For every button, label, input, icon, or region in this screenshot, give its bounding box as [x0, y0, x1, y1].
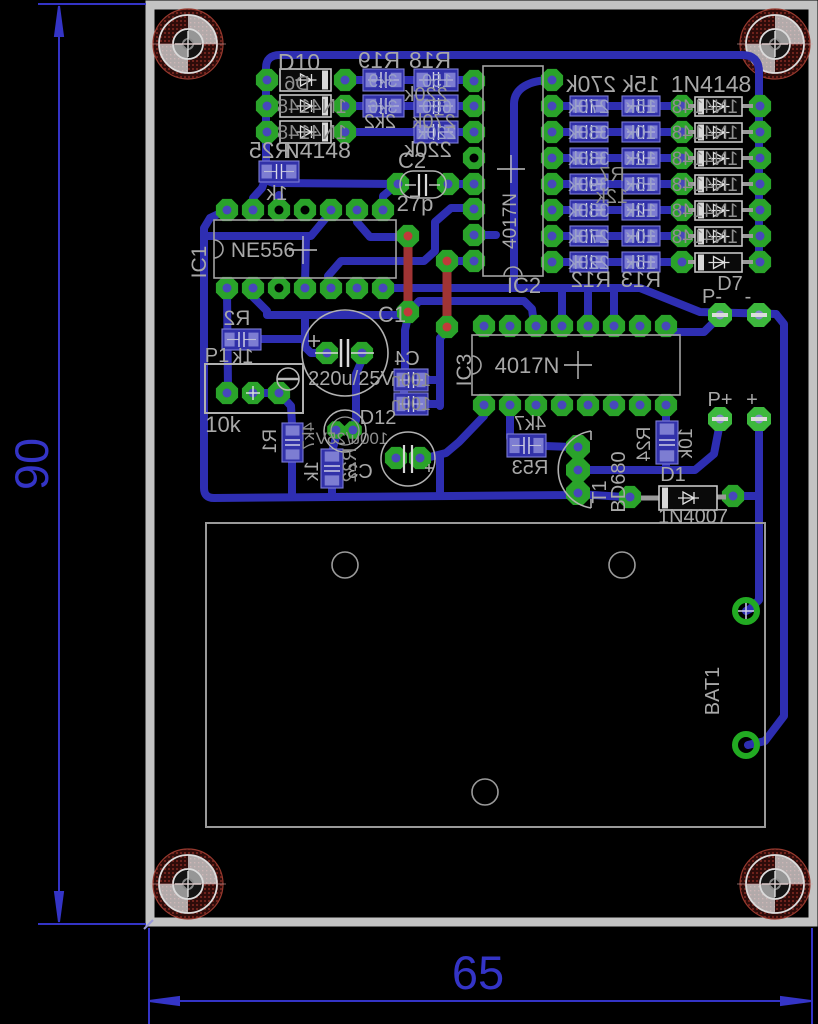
- svg-text:4017N: 4017N: [500, 193, 521, 249]
- svg-text:R22: R22: [340, 448, 361, 483]
- svg-text:12k: 12k: [595, 186, 628, 208]
- svg-text:R53: R53: [512, 457, 549, 479]
- svg-text:-: -: [745, 286, 752, 308]
- svg-text:1N4148: 1N4148: [672, 149, 739, 170]
- svg-text:R2: R2: [224, 307, 251, 330]
- svg-text:P-: P-: [702, 286, 722, 308]
- svg-text:IC1: IC1: [188, 246, 211, 279]
- svg-text:BD680: BD680: [608, 451, 630, 512]
- svg-text:10k: 10k: [676, 428, 697, 459]
- svg-text:D10: D10: [278, 49, 320, 75]
- svg-text:R13: R13: [621, 267, 661, 292]
- svg-text:1N4007: 1N4007: [658, 506, 728, 528]
- svg-text:100u/25V: 100u/25V: [315, 429, 388, 448]
- svg-text:NE556: NE556: [231, 239, 295, 262]
- svg-text:+: +: [746, 389, 758, 411]
- svg-text:3k9: 3k9: [368, 71, 397, 91]
- svg-text:65: 65: [452, 946, 504, 999]
- svg-text:100n: 100n: [391, 370, 431, 390]
- svg-text:1N4148: 1N4148: [277, 96, 347, 118]
- svg-text:12k: 12k: [625, 201, 656, 222]
- svg-text:15k: 15k: [625, 97, 656, 118]
- svg-text:R24: R24: [634, 427, 655, 462]
- svg-text:IC2: IC2: [507, 273, 541, 298]
- svg-text:1N4148: 1N4148: [277, 122, 347, 144]
- svg-text:BAT1: BAT1: [702, 667, 724, 716]
- svg-text:1N4148: 1N4148: [671, 71, 752, 97]
- svg-text:27p: 27p: [397, 191, 434, 216]
- svg-text:330k: 330k: [568, 123, 610, 144]
- svg-text:100n: 100n: [391, 394, 431, 414]
- svg-text:4k7: 4k7: [514, 413, 546, 435]
- svg-text:C4: C4: [394, 348, 420, 370]
- svg-text:2k2: 2k2: [364, 111, 396, 133]
- svg-text:R7: R7: [599, 164, 625, 186]
- svg-text:1k: 1k: [302, 461, 323, 482]
- svg-text:10k: 10k: [625, 227, 656, 248]
- svg-text:1k: 1k: [265, 183, 287, 205]
- svg-text:10k: 10k: [625, 123, 656, 144]
- svg-text:D12: D12: [360, 407, 397, 429]
- svg-text:1N4148: 1N4148: [672, 123, 739, 144]
- svg-text:15k: 15k: [622, 71, 660, 97]
- svg-text:4k7: 4k7: [299, 422, 318, 449]
- svg-text:270k: 270k: [566, 71, 616, 97]
- svg-text:C1: C1: [378, 302, 406, 327]
- svg-text:10k: 10k: [205, 412, 241, 437]
- svg-text:D1: D1: [660, 464, 686, 486]
- svg-text:R19: R19: [358, 47, 400, 73]
- svg-text:R1: R1: [260, 429, 281, 453]
- svg-text:15k: 15k: [625, 175, 656, 196]
- svg-text:1N4148: 1N4148: [672, 175, 739, 196]
- svg-text:270k: 270k: [568, 227, 610, 248]
- svg-text:P+: P+: [707, 389, 732, 411]
- svg-text:1N4148: 1N4148: [672, 201, 739, 222]
- svg-text:P1: P1: [205, 345, 229, 367]
- svg-text:D6: D6: [284, 73, 310, 95]
- svg-text:1N4148: 1N4148: [672, 227, 739, 248]
- svg-text:220k: 220k: [403, 137, 452, 162]
- svg-text:90: 90: [5, 438, 58, 490]
- svg-text:1N4148: 1N4148: [672, 97, 739, 118]
- svg-text:IC3: IC3: [453, 354, 476, 387]
- svg-text:R18: R18: [409, 47, 451, 73]
- svg-text:220u/25V: 220u/25V: [308, 368, 394, 390]
- svg-text:4017N: 4017N: [495, 353, 560, 378]
- svg-text:1k: 1k: [231, 346, 253, 368]
- svg-text:270k: 270k: [568, 97, 610, 118]
- svg-text:270k: 270k: [411, 111, 455, 133]
- svg-text:R12: R12: [571, 267, 611, 292]
- svg-text:12k: 12k: [625, 149, 656, 170]
- svg-text:220k: 220k: [403, 84, 447, 106]
